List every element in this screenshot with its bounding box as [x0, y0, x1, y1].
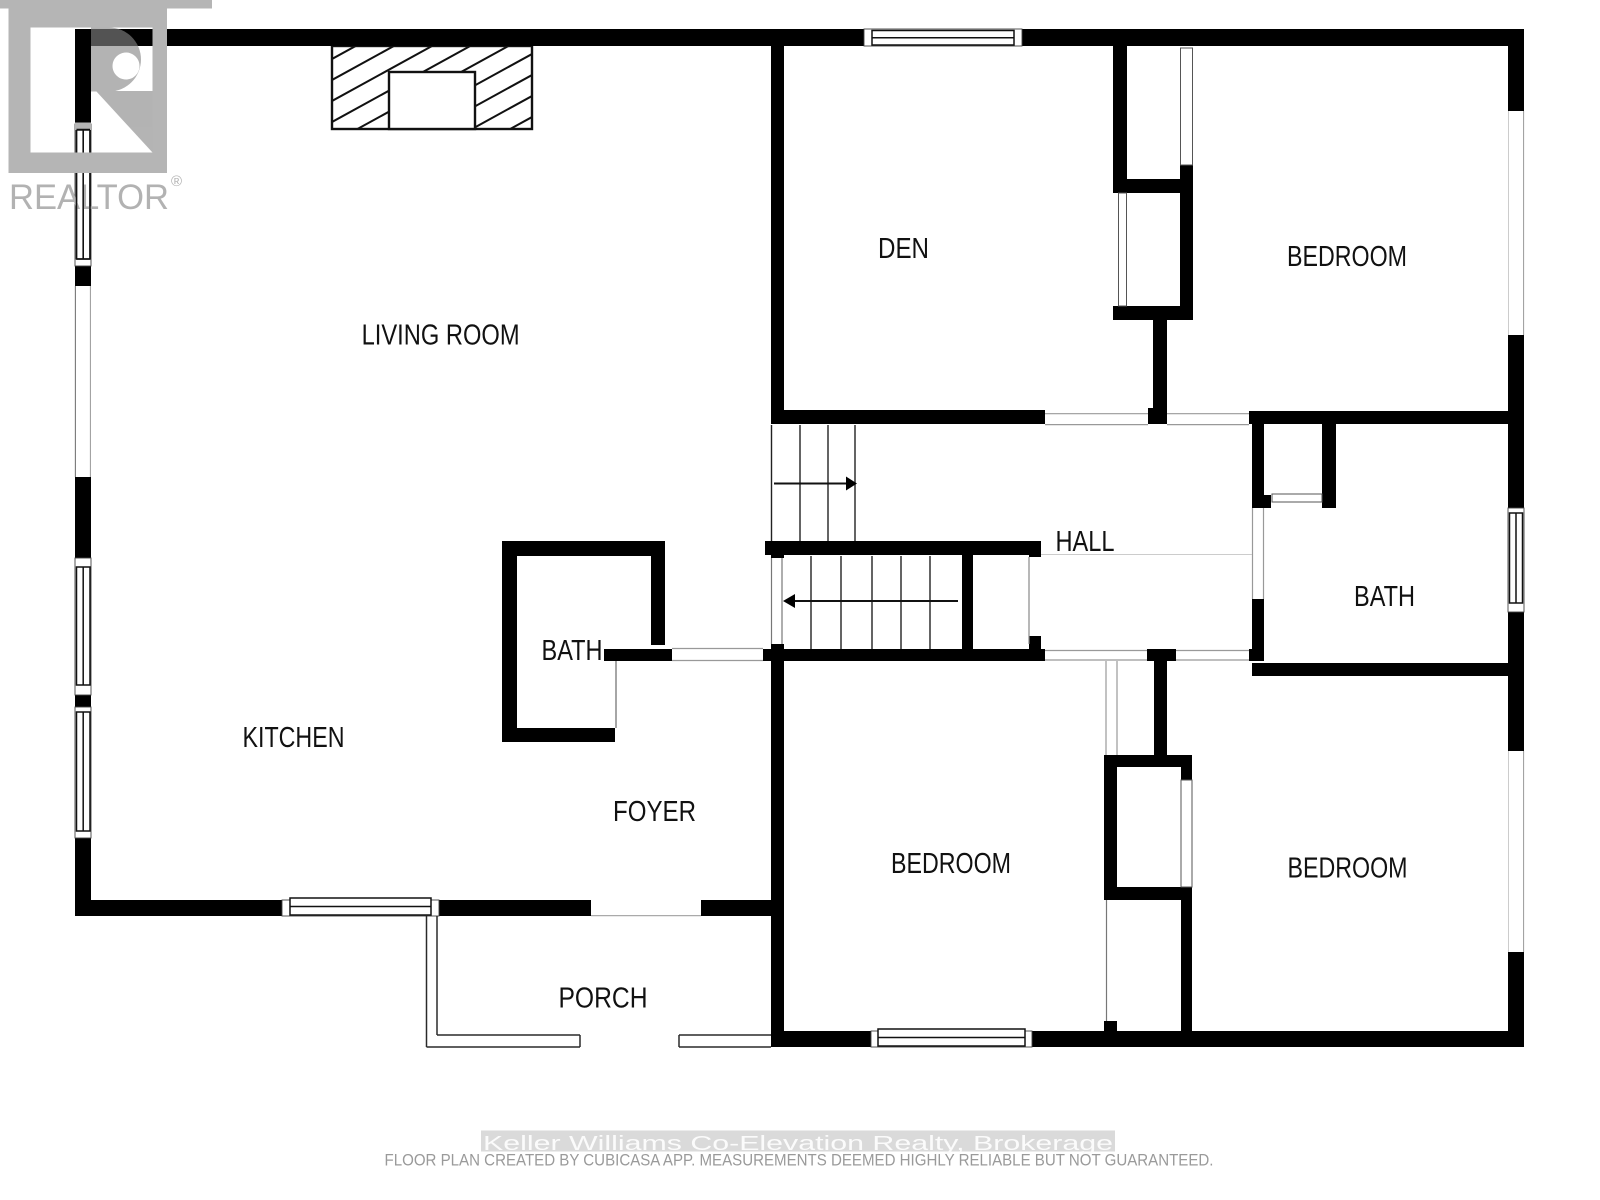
- svg-text:®: ®: [171, 173, 182, 190]
- svg-text:BEDROOM: BEDROOM: [1288, 853, 1408, 885]
- svg-text:HALL: HALL: [1056, 526, 1115, 558]
- svg-text:BATH: BATH: [1354, 581, 1415, 613]
- svg-text:LIVING ROOM: LIVING ROOM: [362, 320, 520, 352]
- svg-text:DEN: DEN: [878, 233, 929, 265]
- svg-text:REALTOR: REALTOR: [9, 178, 169, 217]
- svg-text:BEDROOM: BEDROOM: [1287, 241, 1407, 273]
- svg-text:BEDROOM: BEDROOM: [891, 848, 1011, 880]
- svg-text:FOYER: FOYER: [613, 796, 696, 828]
- svg-text:BATH: BATH: [542, 635, 603, 667]
- svg-text:PORCH: PORCH: [559, 983, 648, 1015]
- svg-text:KITCHEN: KITCHEN: [243, 722, 345, 754]
- svg-text:FLOOR PLAN CREATED BY CUBICASA: FLOOR PLAN CREATED BY CUBICASA APP. MEAS…: [385, 1151, 1214, 1170]
